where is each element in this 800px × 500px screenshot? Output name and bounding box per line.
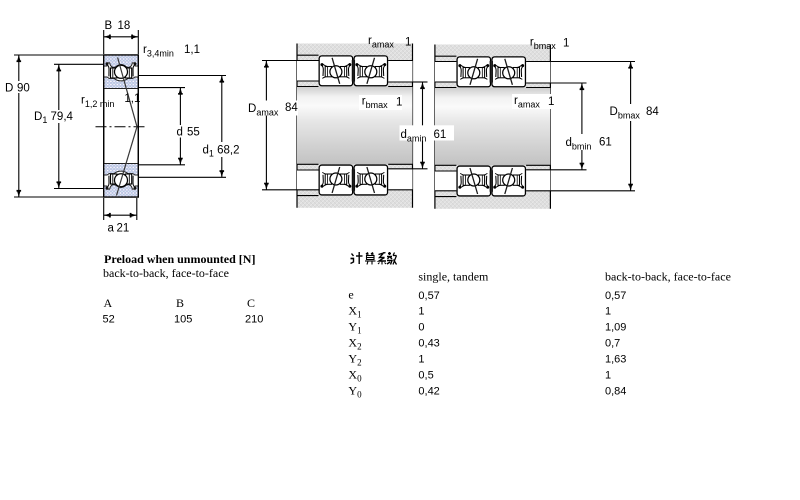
svg-text:C: C bbox=[247, 296, 255, 310]
svg-text:back-to-back, face-to-face: back-to-back, face-to-face bbox=[103, 266, 229, 280]
svg-text:d1 68,2: d1 68,2 bbox=[203, 145, 240, 159]
svg-text:A: A bbox=[104, 296, 113, 310]
svg-text:a: a bbox=[108, 223, 115, 235]
svg-text:0,43: 0,43 bbox=[418, 338, 439, 350]
svg-text:1,09: 1,09 bbox=[605, 322, 626, 334]
svg-text:1,1: 1,1 bbox=[184, 44, 200, 56]
svg-text:84: 84 bbox=[646, 106, 659, 118]
svg-text:0: 0 bbox=[418, 322, 424, 334]
svg-text:1: 1 bbox=[605, 306, 611, 318]
svg-text:Preload when unmounted [N]: Preload when unmounted [N] bbox=[104, 252, 255, 266]
svg-text:61: 61 bbox=[599, 137, 612, 149]
svg-text:1,1: 1,1 bbox=[124, 93, 140, 105]
svg-text:single, tandem: single, tandem bbox=[418, 270, 489, 284]
svg-text:B: B bbox=[105, 20, 113, 32]
svg-text:0,84: 0,84 bbox=[605, 386, 626, 398]
svg-text:back-to-back, face-to-face: back-to-back, face-to-face bbox=[605, 270, 731, 284]
svg-text:0,5: 0,5 bbox=[418, 370, 433, 382]
svg-text:1: 1 bbox=[563, 38, 569, 50]
svg-text:1: 1 bbox=[405, 37, 411, 49]
svg-text:1,63: 1,63 bbox=[605, 354, 626, 366]
svg-text:18: 18 bbox=[118, 20, 131, 32]
svg-text:D: D bbox=[5, 83, 13, 95]
svg-text:1: 1 bbox=[396, 97, 402, 109]
svg-text:61: 61 bbox=[434, 129, 447, 141]
svg-text:e: e bbox=[348, 288, 353, 302]
svg-text:d: d bbox=[177, 127, 183, 139]
svg-text:0,42: 0,42 bbox=[418, 386, 439, 398]
svg-text:1: 1 bbox=[605, 370, 611, 382]
svg-text:1: 1 bbox=[548, 96, 554, 108]
svg-text:52: 52 bbox=[103, 314, 115, 326]
svg-text:84: 84 bbox=[285, 102, 298, 114]
svg-text:D1 79,4: D1 79,4 bbox=[34, 111, 74, 125]
svg-text:0,7: 0,7 bbox=[605, 338, 620, 350]
svg-text:B: B bbox=[176, 296, 184, 310]
svg-text:0,57: 0,57 bbox=[605, 290, 626, 302]
svg-text:1: 1 bbox=[418, 306, 424, 318]
svg-text:90: 90 bbox=[17, 83, 30, 95]
svg-text:0,57: 0,57 bbox=[418, 290, 439, 302]
svg-text:55: 55 bbox=[187, 127, 200, 139]
svg-text:1: 1 bbox=[418, 354, 424, 366]
svg-text:210: 210 bbox=[245, 314, 263, 326]
svg-text:21: 21 bbox=[117, 223, 130, 235]
svg-text:105: 105 bbox=[174, 314, 192, 326]
